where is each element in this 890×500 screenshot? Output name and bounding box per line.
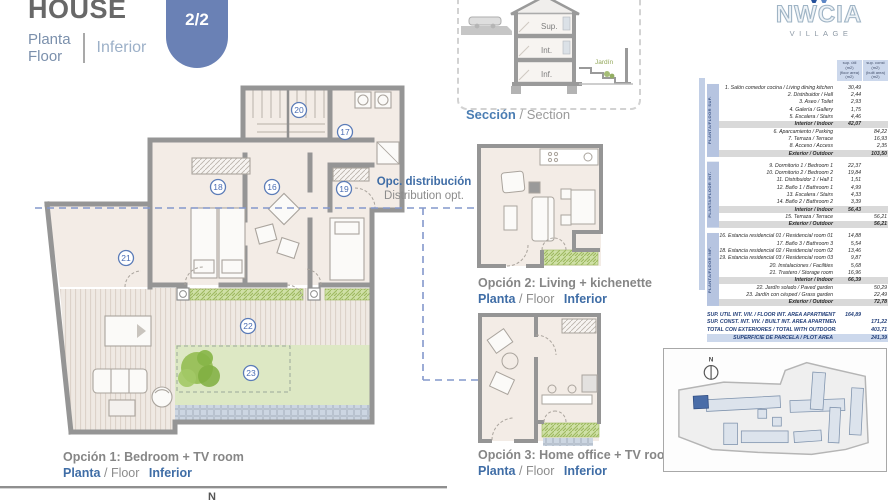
title-block: HOUSE Planta Floor Inferior — [28, 0, 146, 66]
option2-title: Opción 2: Living + kichenette — [478, 276, 652, 292]
section-drawing: Sup. Int. Inf. Jardín — [459, 0, 635, 104]
room-circle-22: 22 — [241, 319, 256, 334]
room-circle-21: 21 — [119, 251, 134, 266]
svg-text:20: 20 — [294, 105, 304, 115]
table-row: Exterior / Outdoor56,21 — [719, 221, 888, 228]
svg-text:23: 23 — [246, 368, 256, 378]
areas-table-header: sup. útil (m2) (floor area) (m2) sup. co… — [707, 60, 888, 81]
floor-label-es: Planta — [28, 31, 71, 48]
svg-text:22: 22 — [243, 321, 253, 331]
table-row: 5. Escalera / Stairs4,46 — [719, 113, 888, 120]
table-row: 9. Dormitorio 1 / Bedroom 122,37 — [719, 162, 888, 169]
table-row: 1. Salón comedor cocina / Living dining … — [719, 84, 888, 91]
highlighted-unit — [693, 395, 708, 408]
distribution-note: Opc. distribución Distribution opt. — [373, 176, 475, 204]
summary-row: SUPERFICIE DE PARCELA / PLOT AREA241,39 — [707, 334, 888, 342]
room-circle-23: 23 — [244, 366, 259, 381]
distribution-note-en: Distribution opt. — [373, 190, 475, 204]
page-title: HOUSE — [28, 0, 146, 25]
table-row: 18. Estancia residencial 02 / Residencia… — [719, 247, 888, 254]
roof — [511, 0, 579, 14]
brand-subname: VILLAGE — [760, 29, 878, 38]
table-row: 13. Escalera / Stairs4,33 — [719, 191, 888, 198]
summary-row: TOTAL CON EXTERIORES / TOTAL WITH OUTDOO… — [707, 326, 888, 334]
areas-table-summary: SUP. ÚTIL INT. VIV. / FLOOR INT. AREA AP… — [707, 311, 888, 342]
plan-sheet: { "header": {"title":"HOUSE","planta":"P… — [0, 0, 890, 500]
table-row: 3. Aseo / Toilet2,93 — [719, 99, 888, 106]
table-row: Interior / Indoor56,43 — [719, 206, 888, 213]
table-group-label: PLANTA/FLOOR SUP. — [707, 84, 719, 157]
option1-planta: Planta — [63, 466, 101, 480]
label-inf: Inf. — [541, 70, 552, 79]
svg-text:16: 16 — [267, 182, 277, 192]
brand-logo: NWCIA VILLAGE — [760, 0, 878, 38]
table-row: 6. Aparcamiento / Parking84,22 — [719, 128, 888, 135]
room-circle-20: 20 — [292, 103, 307, 118]
car-icon — [469, 17, 501, 25]
section-caption-en: / Section — [519, 107, 570, 122]
distribution-note-es: Opc. distribución — [373, 176, 475, 190]
option3-level: Inferior — [564, 464, 607, 478]
table-group-label: PLANTA/FLOOR INF. — [707, 233, 719, 306]
option2-floor: / Floor — [519, 292, 554, 306]
table-row: 17. Baño 3 / Bathroom 35,54 — [719, 240, 888, 247]
table-group: PLANTA/FLOOR INF.16. Estancia residencia… — [707, 233, 888, 306]
table-row: 2. Distribuidor / Hall2,44 — [719, 91, 888, 98]
svg-text:18: 18 — [213, 182, 223, 192]
bottom-divider — [0, 486, 447, 489]
planter-mosaic-strip — [175, 405, 372, 420]
table-row: 10. Dormitorio 2 / Bedroom 219,84 — [719, 169, 888, 176]
table-row: 12. Baño 1 / Bathroom 14,99 — [719, 184, 888, 191]
summary-row: SUP. CONST. INT. VIV. / BUILT INT. AREA … — [707, 319, 888, 327]
table-row: 20. Instalaciones / Facilities5,68 — [719, 262, 888, 269]
option3-caption: Opción 3: Home office + TV room Planta /… — [478, 448, 676, 479]
option3-floor: / Floor — [519, 464, 554, 478]
table-row: 4. Galería / Gallery1,75 — [719, 106, 888, 113]
table-row: 11. Distribuidor 1 / Hall 11,51 — [719, 177, 888, 184]
planters — [177, 288, 371, 300]
table-row: Exterior / Outdoor103,50 — [719, 150, 888, 157]
table-row: 14. Baño 2 / Bathroom 23,39 — [719, 199, 888, 206]
table-row: Exterior / Outdoor72,78 — [719, 299, 888, 306]
floor-label-en: Floor — [28, 48, 71, 65]
option3-plan — [476, 311, 606, 449]
table-row: 22. Jardín solado / Paved garden50,29 — [719, 284, 888, 291]
option1-title: Opción 1: Bedroom + TV room — [63, 450, 244, 466]
table-row: 8. Acceso / Access2,35 — [719, 143, 888, 150]
brand-name: NWCIA — [760, 3, 878, 27]
label-int: Int. — [541, 46, 552, 55]
col-header-util: sup. útil (m2) (floor area) (m2) — [837, 60, 862, 81]
section-drawing-box: Sup. Int. Inf. Jardín — [457, 0, 641, 110]
svg-text:17: 17 — [340, 127, 350, 137]
page-counter: 2/2 — [166, 10, 228, 30]
floor-level: Inferior — [97, 39, 147, 57]
main-floor-plan: 20 17 18 16 19 21 22 23 — [25, 80, 480, 462]
svg-text:19: 19 — [339, 184, 349, 194]
section-caption: Sección / Section — [466, 107, 570, 122]
north-arrow-label: N — [208, 491, 216, 500]
room-circle-18: 18 — [211, 180, 226, 195]
table-row: 19. Estancia residencial 03 / Residencia… — [719, 255, 888, 262]
option2-plan — [476, 142, 606, 272]
ground-left — [461, 26, 512, 35]
sheet-number-badge: 08 2/2 — [166, 0, 228, 68]
col-header-const: sup. const (m2) (built area) (m2) — [863, 60, 888, 81]
table-row: 7. Terraza / Terrace16,93 — [719, 135, 888, 142]
label-jardin: Jardín — [595, 59, 613, 66]
compass-north-label: N — [709, 357, 714, 364]
table-row: 16. Estancia residencial 01 / Residencia… — [719, 233, 888, 240]
divider — [83, 33, 85, 63]
floor-label: Planta Floor — [28, 31, 71, 66]
table-row: 15. Terraza / Terrace56,21 — [719, 213, 888, 220]
option2-caption: Opción 2: Living + kichenette Planta / F… — [478, 276, 652, 307]
option3-planta: Planta — [478, 464, 516, 478]
table-row: Interior / Indoor66,39 — [719, 277, 888, 284]
table-row: 23. Jardín con césped / Grass garden22,4… — [719, 291, 888, 298]
option2-planta: Planta — [478, 292, 516, 306]
summary-row: SUP. ÚTIL INT. VIV. / FLOOR INT. AREA AP… — [707, 311, 888, 319]
svg-text:21: 21 — [121, 253, 131, 263]
areas-table-groups: PLANTA/FLOOR SUP.1. Salón comedor cocina… — [707, 84, 888, 306]
room-circle-17: 17 — [338, 125, 353, 140]
areas-table: sup. útil (m2) (floor area) (m2) sup. co… — [707, 60, 888, 342]
table-row: 21. Trastero / Storage room16,96 — [719, 269, 888, 276]
site-key-map: N — [663, 348, 887, 472]
table-group-label: PLANTA/FLOOR INT. — [707, 162, 719, 228]
option1-caption: Opción 1: Bedroom + TV room Planta / Flo… — [63, 450, 244, 481]
option3-title: Opción 3: Home office + TV room — [478, 448, 676, 464]
table-group: PLANTA/FLOOR INT.9. Dormitorio 1 / Bedro… — [707, 162, 888, 228]
room-circle-19: 19 — [337, 182, 352, 197]
option1-floor: / Floor — [104, 466, 139, 480]
table-accent-strip — [699, 78, 705, 290]
label-sup: Sup. — [541, 22, 557, 31]
site-map-drawing: N — [664, 349, 883, 468]
table-group: PLANTA/FLOOR SUP.1. Salón comedor cocina… — [707, 84, 888, 157]
option1-level: Inferior — [149, 466, 192, 480]
table-row: Interior / Indoor42,07 — [719, 121, 888, 128]
room-circle-16: 16 — [265, 180, 280, 195]
option2-level: Inferior — [564, 292, 607, 306]
